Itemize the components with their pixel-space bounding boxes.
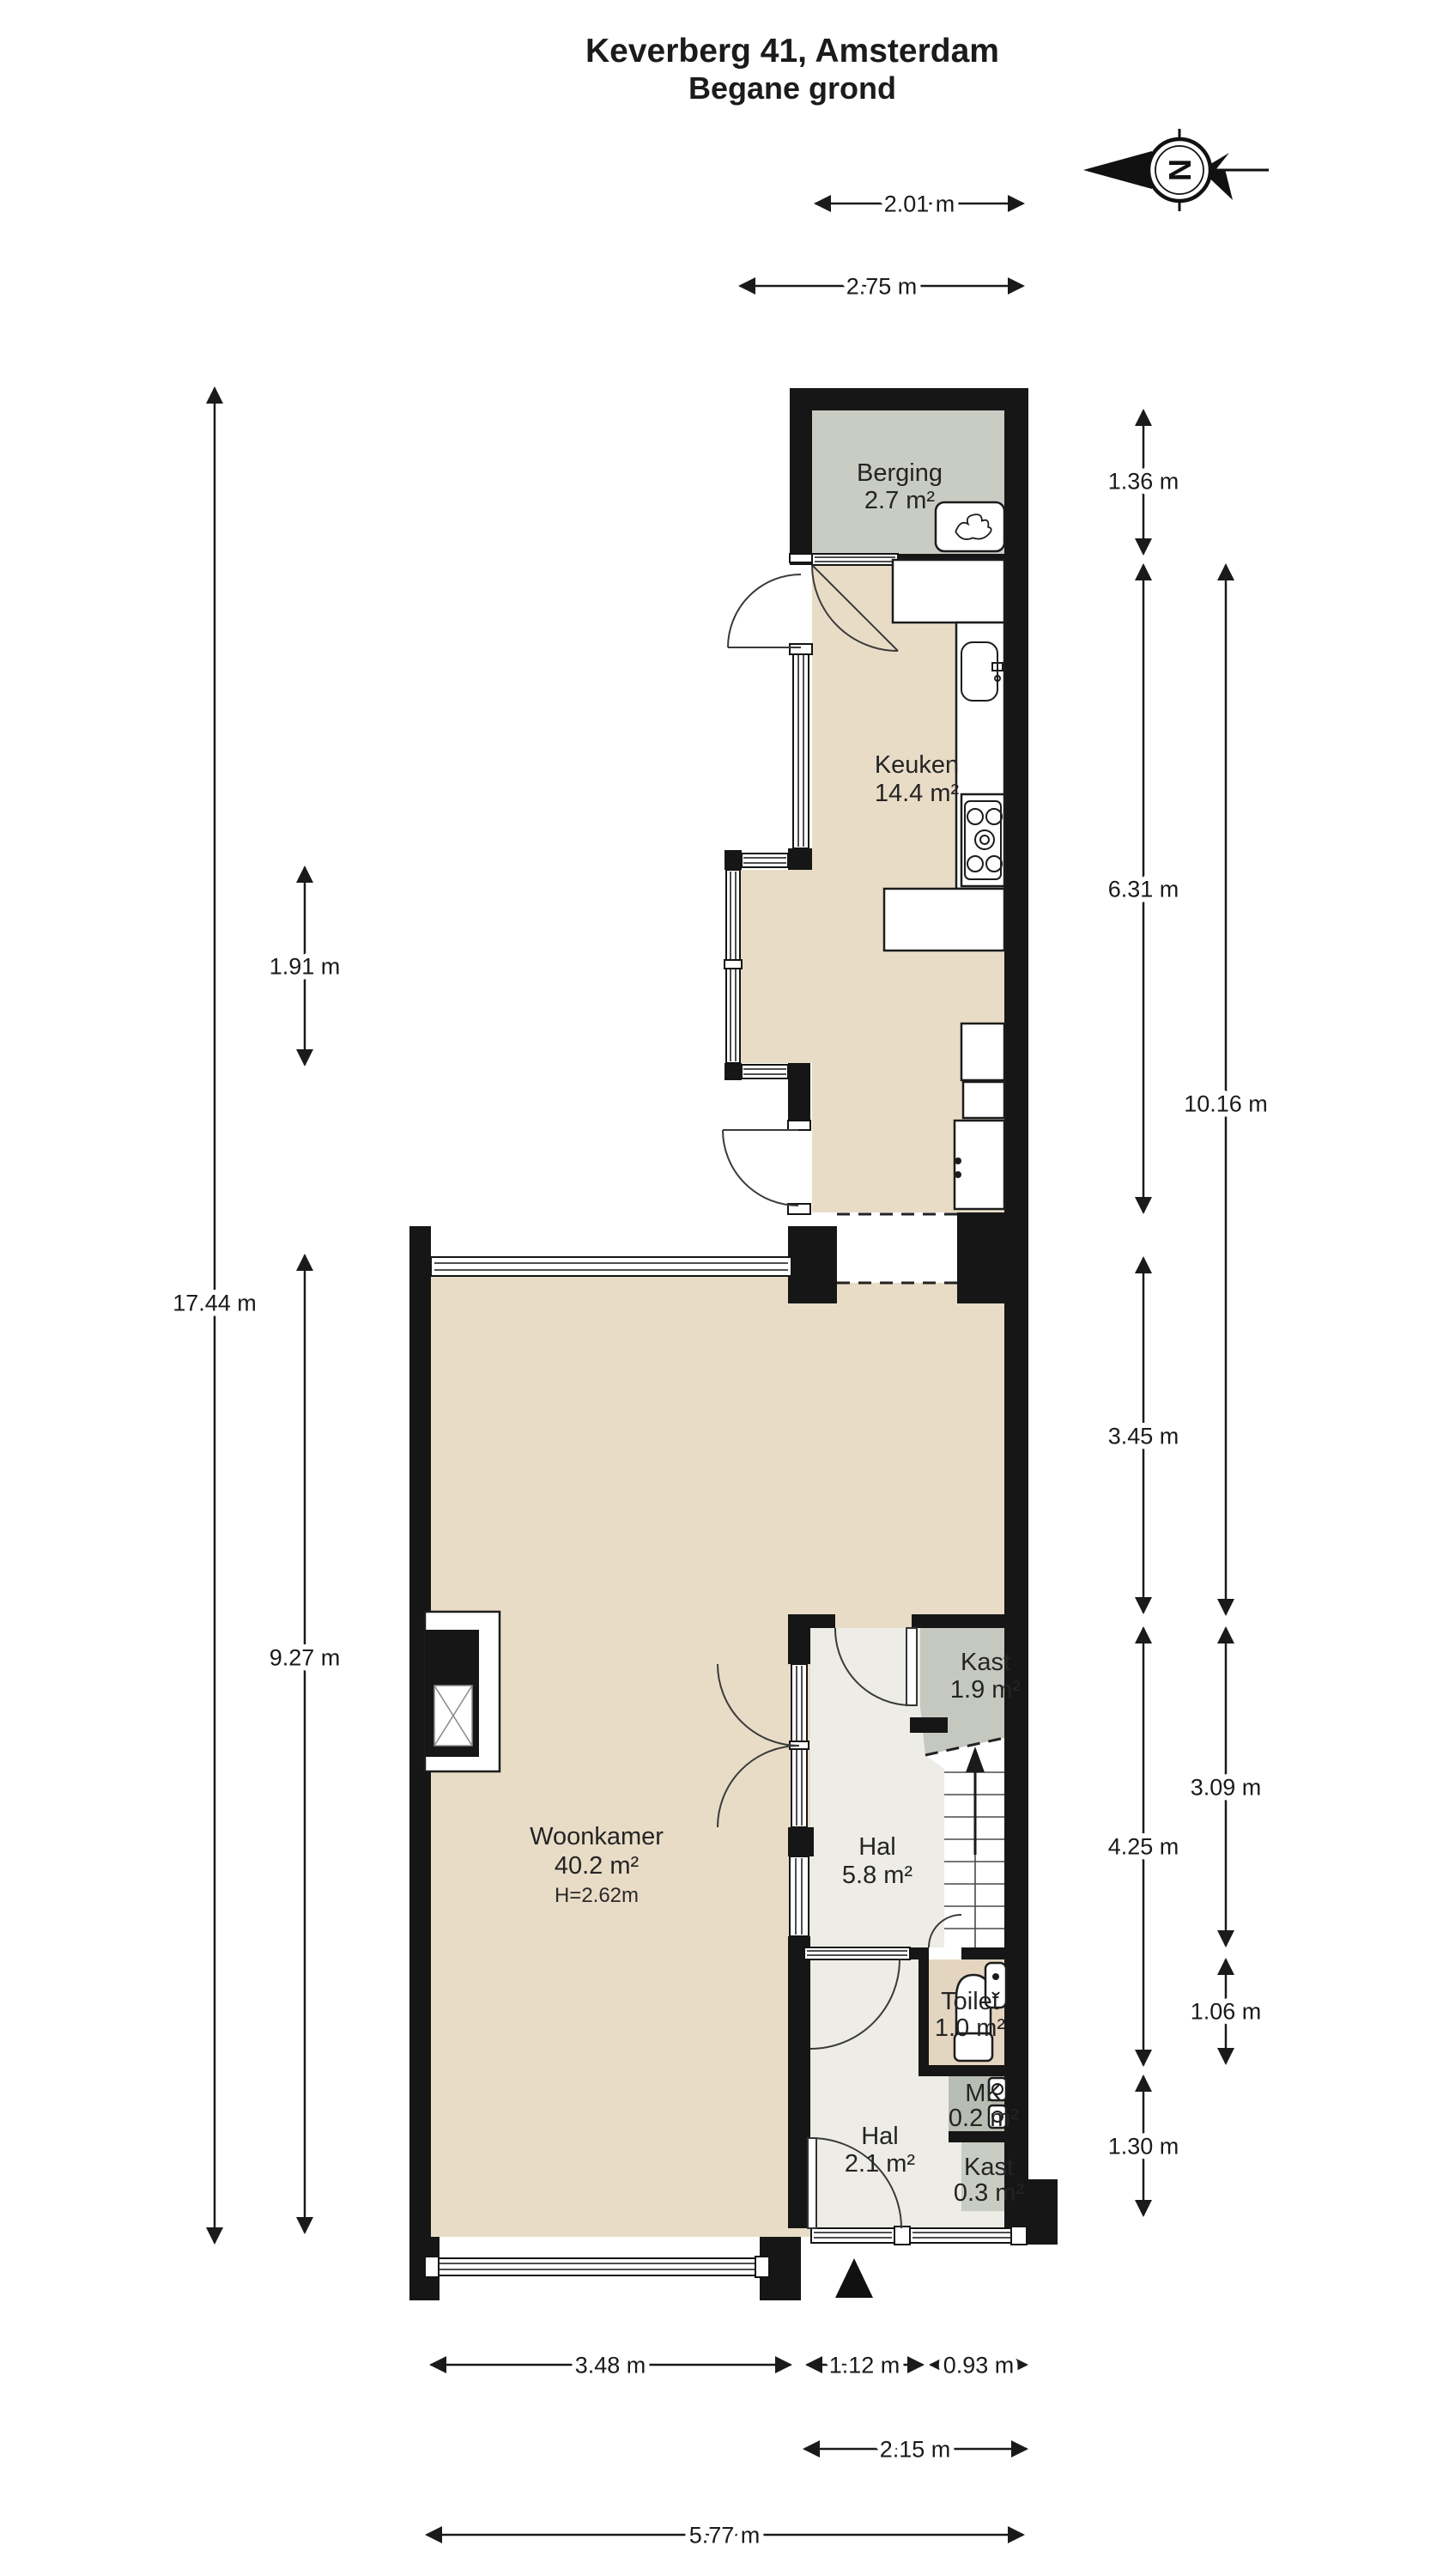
- door-keuken-exterior: [728, 574, 801, 647]
- title-block: Keverberg 41, Amsterdam Begane grond: [585, 33, 999, 106]
- window-bay-top: [742, 854, 788, 867]
- window-entrance-row: [811, 2227, 1027, 2245]
- room-label-kast2: Kast: [964, 2154, 1014, 2181]
- dim-woonkamer-height: 9.27 m: [270, 1644, 341, 1670]
- dim-toilet-height: 1.06 m: [1191, 1998, 1262, 2024]
- threshold-berging-door: [812, 554, 898, 565]
- fireplace-icon: [425, 1612, 500, 1771]
- dim-berging-height: 1.36 m: [1108, 468, 1179, 494]
- room-area-hal: 5.8 m²: [842, 1862, 913, 1889]
- dim-upper-woonkamer-height: 3.45 m: [1108, 1423, 1179, 1449]
- room-area-kast: 1.9 m²: [950, 1676, 1022, 1704]
- window-bay-bottom: [742, 1065, 788, 1078]
- room-area-toilet: 1.0 m²: [935, 2014, 1006, 2042]
- room-area-woonkamer: 40.2 m²: [555, 1852, 640, 1880]
- dim-bay-height: 1.91 m: [270, 953, 341, 979]
- window-woonkamer-top: [431, 1257, 791, 1276]
- window-bay-left: [724, 870, 742, 1063]
- window-keuken-left: [793, 653, 809, 848]
- compass-north-letter: N: [1162, 159, 1197, 181]
- room-area-berging: 2.7 m²: [864, 487, 936, 514]
- floor-plan: 2.01 m 2.75 m 1.36 m 6.31 m 10.16 m 1.91…: [0, 0, 1449, 2576]
- room-label-mk: MK: [965, 2080, 1003, 2107]
- stove-icon: [961, 794, 1004, 886]
- entrance-arrow: [835, 2258, 873, 2298]
- door-patio: [723, 1130, 798, 1206]
- dim-bay-width: 2.75 m: [846, 273, 918, 299]
- room-label-berging: Berging: [857, 459, 943, 487]
- room-label-kast: Kast: [961, 1649, 1010, 1676]
- room-area-mk: 0.2 m²: [949, 2105, 1020, 2132]
- dim-hal-toilet-height: 4.25 m: [1108, 1833, 1179, 1859]
- compass-icon: N: [1083, 129, 1269, 211]
- fridge-icon: [955, 1121, 1004, 1209]
- threshold-patio-door-top: [788, 1121, 810, 1130]
- dim-entrance-width: 2.15 m: [880, 2436, 951, 2462]
- room-area-kast2: 0.3 m²: [954, 2179, 1025, 2207]
- floor-plan-page: 2.01 m 2.75 m 1.36 m 6.31 m 10.16 m 1.91…: [0, 0, 1449, 2576]
- room-label-hal: Hal: [858, 1833, 896, 1861]
- room-label-woonkamer: Woonkamer: [530, 1823, 664, 1850]
- dim-keuken-height: 6.31 m: [1108, 876, 1179, 902]
- dim-woonkamer-width: 3.48 m: [575, 2352, 646, 2378]
- page-subtitle: Begane grond: [688, 70, 896, 106]
- dim-keuken-hal-height: 10.16 m: [1184, 1091, 1268, 1116]
- dim-total-height: 17.44 m: [173, 1290, 257, 1315]
- room-area-hal2: 2.1 m²: [845, 2150, 916, 2178]
- dim-berging-width: 2.01 m: [884, 191, 955, 216]
- room-label-toilet: Toilet: [941, 1988, 999, 2015]
- dim-hal-width: 1.12 m: [829, 2352, 900, 2378]
- dim-toilet-width: 0.93 m: [943, 2352, 1015, 2378]
- boiler-icon: [936, 502, 1004, 551]
- dim-total-width: 5.77 m: [689, 2522, 761, 2548]
- threshold-keuken-door-top: [790, 554, 812, 562]
- room-area-keuken: 14.4 m²: [875, 780, 960, 807]
- open-passage: [837, 1214, 957, 1283]
- page-title: Keverberg 41, Amsterdam: [585, 33, 999, 70]
- dim-lower-section-height: 1.30 m: [1108, 2133, 1179, 2159]
- room-height-woonkamer: H=2.62m: [555, 1884, 639, 1907]
- window-hal-partition: [804, 1947, 910, 1959]
- floors: [431, 410, 1004, 2237]
- window-woonkamer-bottom: [425, 2257, 769, 2277]
- threshold-keuken-door-bottom: [790, 644, 812, 654]
- room-label-hal2: Hal: [861, 2123, 899, 2150]
- dim-hal-height: 3.09 m: [1191, 1774, 1262, 1800]
- window-divider-lower: [790, 1856, 809, 1936]
- room-label-keuken: Keuken: [875, 751, 959, 779]
